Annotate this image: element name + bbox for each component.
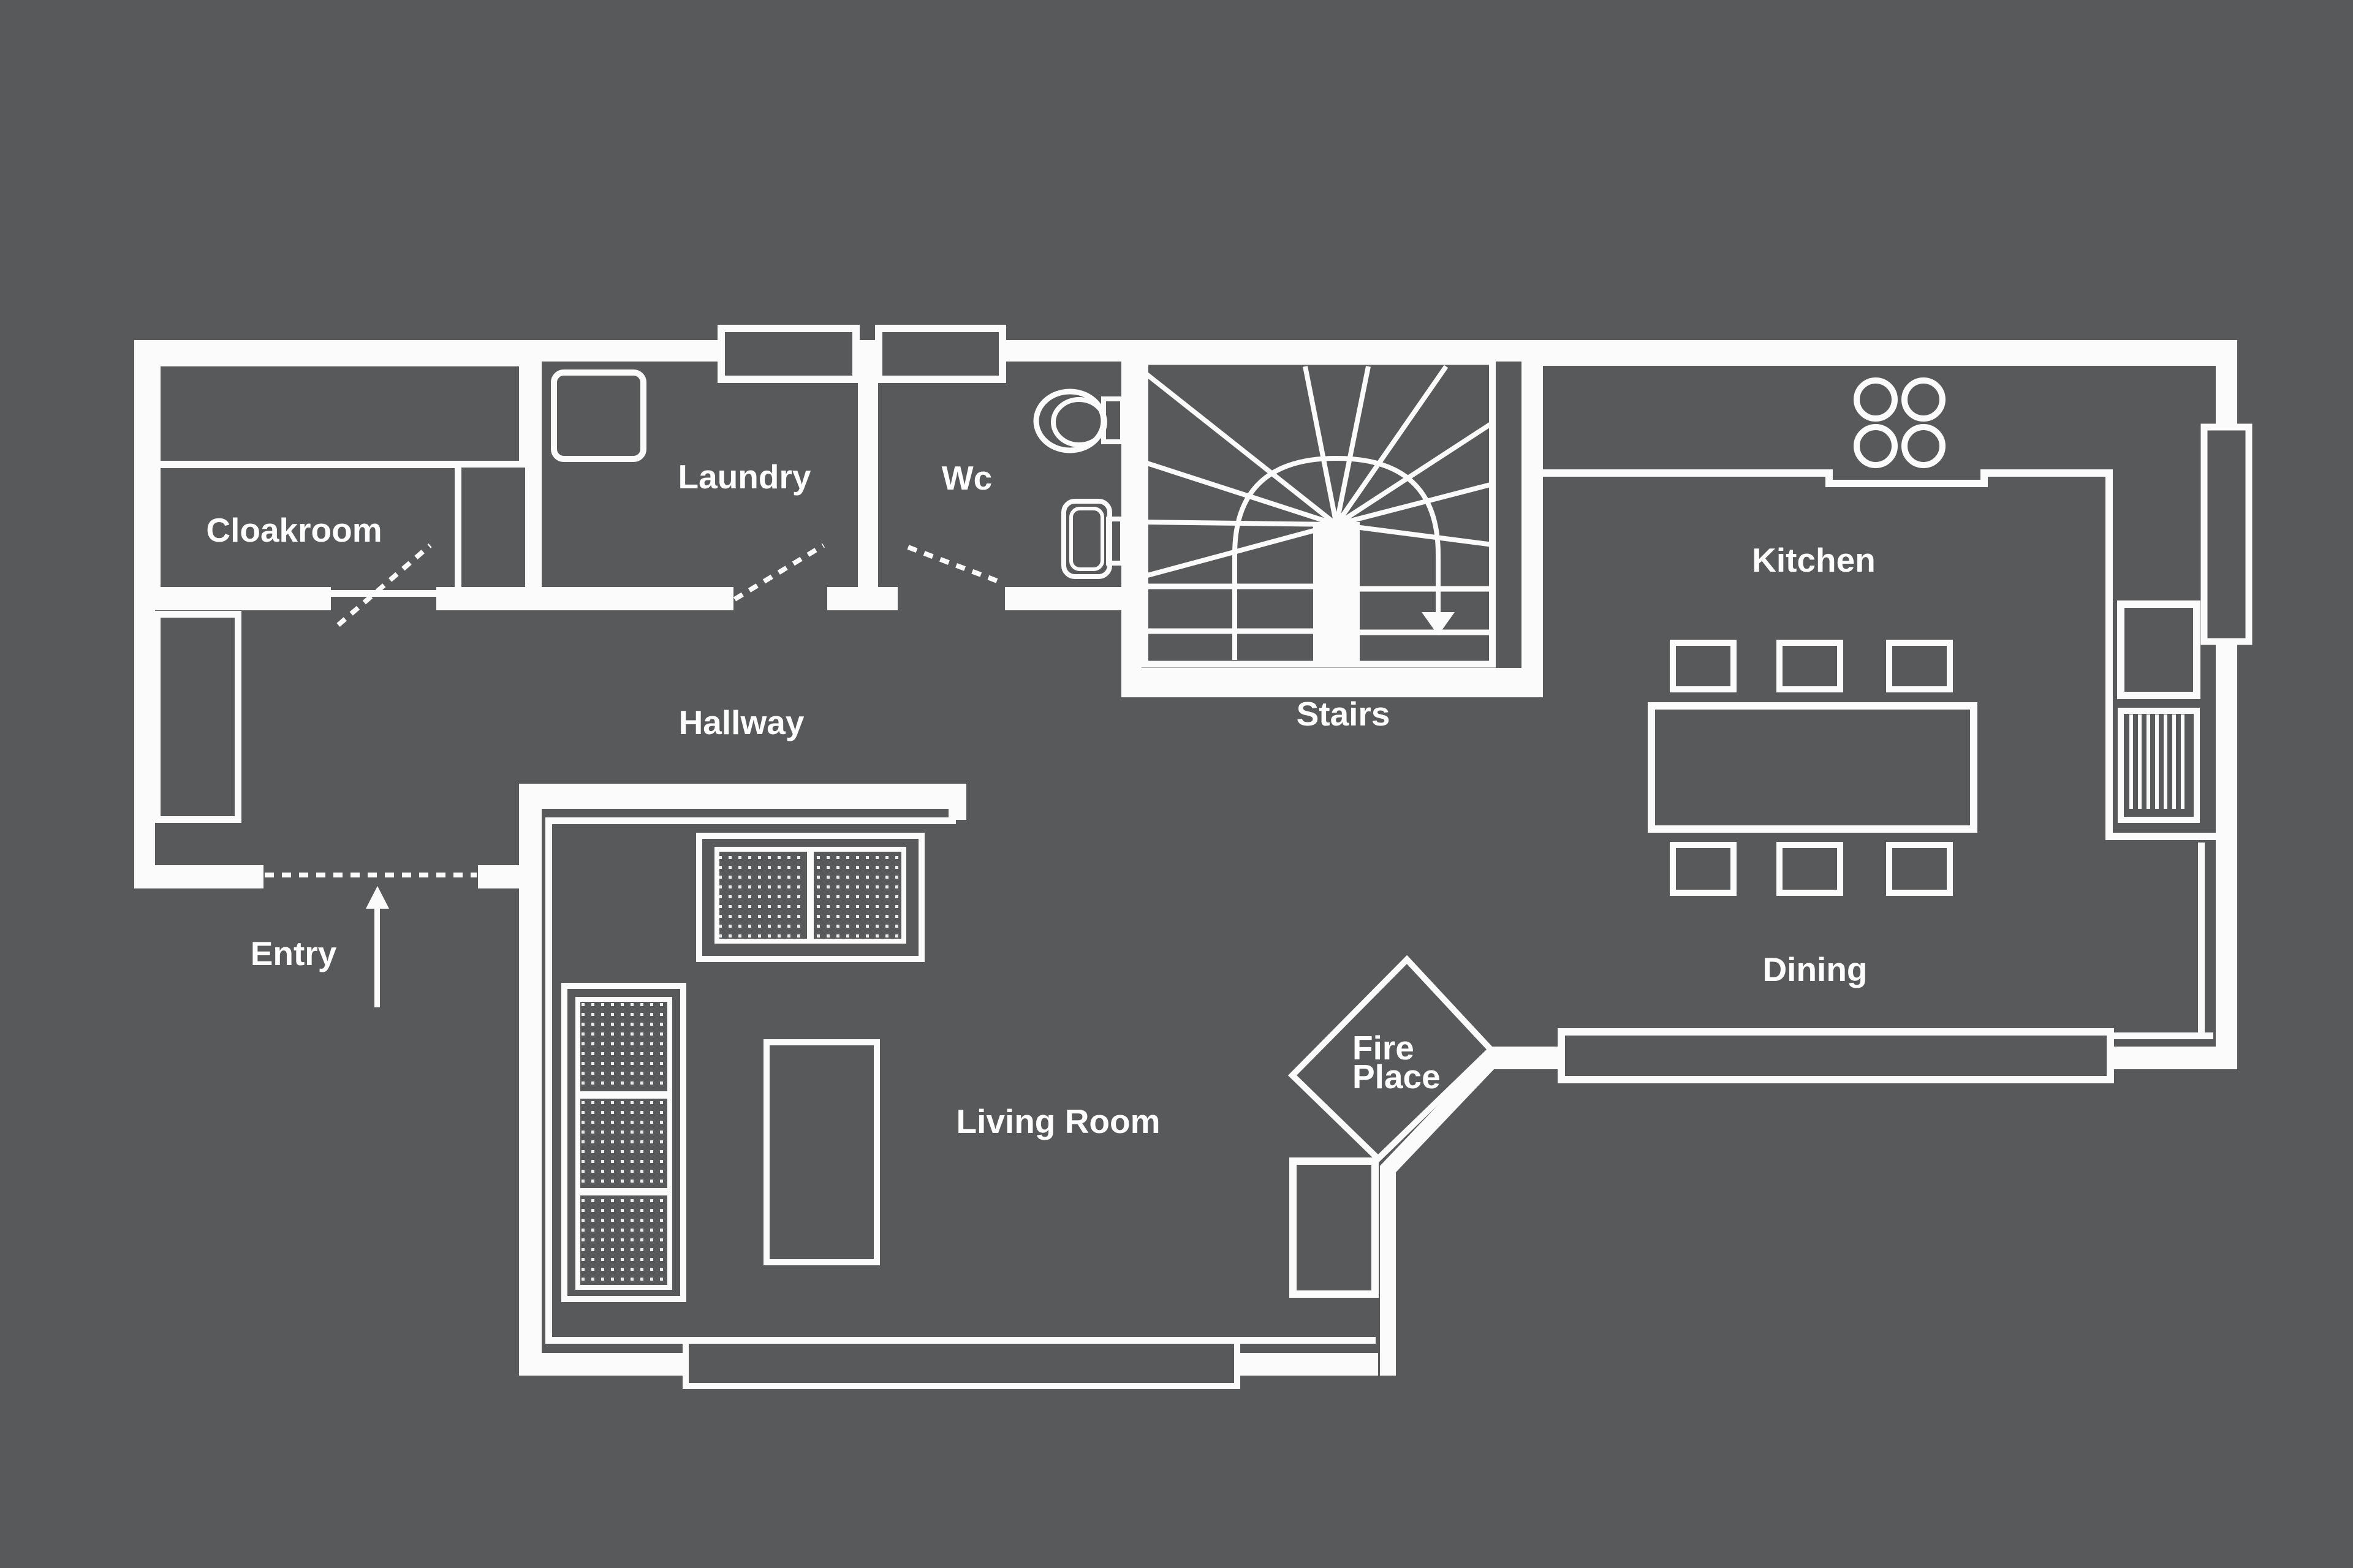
svg-text:Wc: Wc [942,459,993,497]
svg-text:Living Room: Living Room [956,1102,1160,1140]
svg-text:Kitchen: Kitchen [1752,541,1876,579]
svg-text:Laundry: Laundry [678,458,811,496]
svg-text:Hallway: Hallway [679,703,805,741]
svg-text:Place: Place [1352,1058,1441,1096]
svg-text:Entry: Entry [251,934,337,972]
svg-text:Dining: Dining [1762,950,1867,988]
svg-text:Cloakroom: Cloakroom [206,511,382,549]
svg-text:Stairs: Stairs [1297,695,1390,733]
